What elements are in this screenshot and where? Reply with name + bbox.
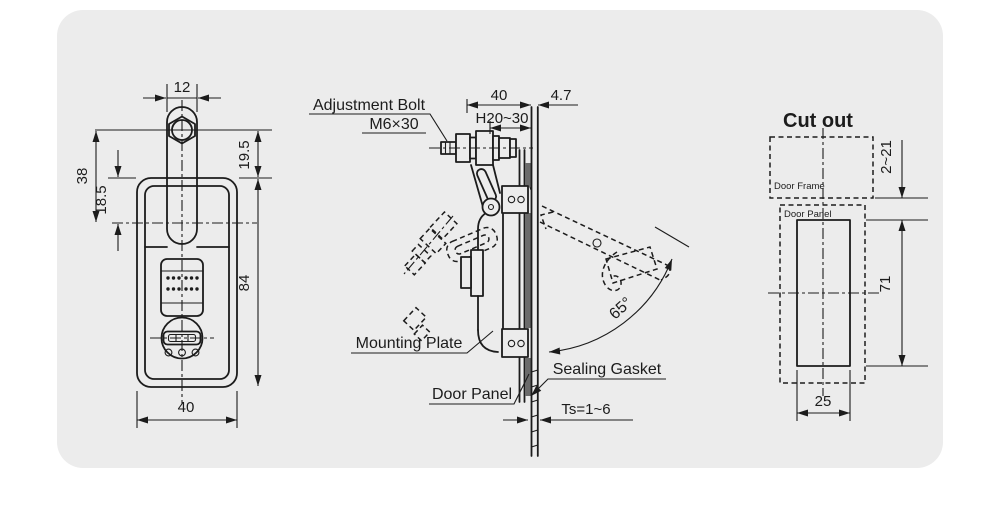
dim-overlap: 2~21 xyxy=(878,140,895,174)
label-door-panel: Door Panel xyxy=(432,386,512,403)
label-adjustment-bolt: Adjustment Bolt xyxy=(313,97,426,114)
dim-width: 25 xyxy=(815,393,832,410)
label-mounting-plate: Mounting Plate xyxy=(356,335,463,352)
lock-cylinder-side xyxy=(471,250,483,296)
dim-panel-thickness: Ts=1~6 xyxy=(561,401,610,418)
dim-84: 84 xyxy=(236,275,253,292)
dim-depth: 40 xyxy=(491,87,508,104)
dim-4-7: 4.7 xyxy=(551,87,572,104)
cam-pivot xyxy=(483,199,500,216)
dim-top-width: 12 xyxy=(174,79,191,96)
label-bolt-spec: M6×30 xyxy=(369,116,418,133)
dim-19-5: 19.5 xyxy=(236,140,253,169)
label-door-frame: Door Frame xyxy=(774,181,825,192)
dim-18-5: 18.5 xyxy=(93,185,110,214)
cutout-title: Cut out xyxy=(783,110,853,132)
latch-technical-drawing: 12 38 18.5 19.5 84 40 xyxy=(0,0,1000,526)
label-door-panel-cutout: Door Panel xyxy=(784,209,832,220)
dim-bottom-width: 40 xyxy=(178,399,195,416)
label-sealing-gasket: Sealing Gasket xyxy=(553,361,662,378)
dim-grip-range: H20~30 xyxy=(476,110,529,127)
dim-38: 38 xyxy=(74,168,91,185)
drawing-page: 12 38 18.5 19.5 84 40 xyxy=(0,0,1000,526)
dim-height: 71 xyxy=(877,276,894,293)
